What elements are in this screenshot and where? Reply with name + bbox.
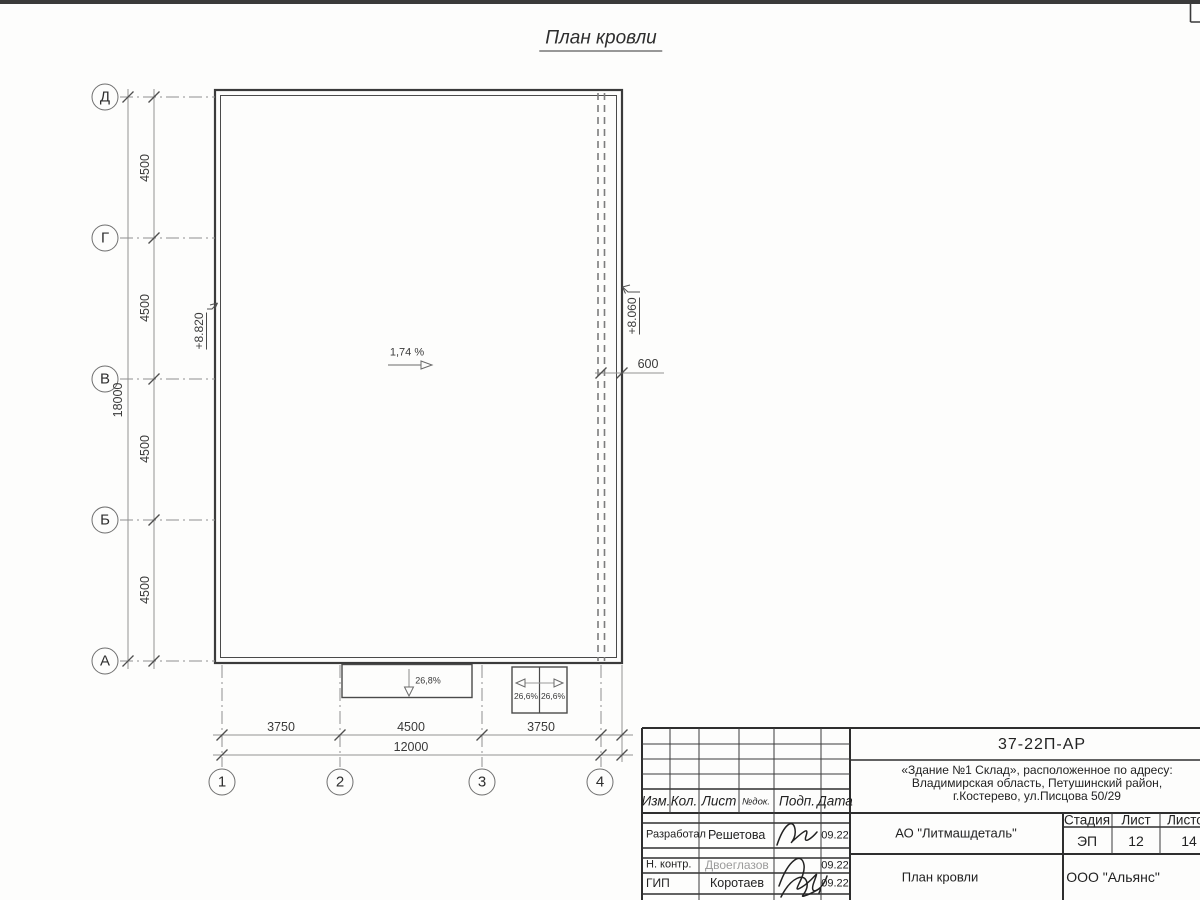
grid-lines: [120, 97, 601, 767]
col-header-kol: Кол.: [671, 794, 698, 808]
col-axis-bubble-2: 2: [327, 769, 354, 796]
sheet-label: Лист: [1121, 813, 1150, 827]
top-edge-bar: [0, 0, 1200, 4]
col-header-podp: Подп.: [779, 794, 815, 808]
parapet-dashed-lines: [598, 93, 605, 661]
sheet-title-heading: План кровли: [539, 29, 662, 52]
organization-name: ООО "Альянс": [1066, 870, 1160, 884]
dimension-ticks: [123, 92, 628, 761]
h-dim-3: 3750: [527, 721, 555, 734]
col-axis-bubble-3: 3: [469, 769, 496, 796]
stage-value: ЭП: [1077, 834, 1097, 848]
row-axis-bubble-d: Д: [92, 84, 119, 111]
v-dim-1: 4500: [139, 154, 152, 182]
col-header-izm: Изм.: [642, 794, 671, 808]
roof-slope-label: 1,74 %: [390, 348, 424, 359]
name-n-control: Двоеглазов: [705, 859, 769, 871]
row-axis-bubble-g: Г: [92, 225, 119, 252]
role-gip: ГИП: [646, 877, 670, 889]
address-line-2: Владимирская область, Петушинский район,: [912, 777, 1162, 789]
elevation-mark-left: +8.820: [193, 312, 207, 349]
col-axis-bubble-1: 1: [209, 769, 236, 796]
col-header-data: Дата: [817, 794, 853, 808]
drawing-sheet: { "drawing_title": "План кровли", "plan"…: [0, 0, 1200, 900]
role-n-control: Н. контр.: [646, 860, 691, 871]
v-dim-2: 4500: [139, 294, 152, 322]
canopy-center-slope: 26,8%: [415, 677, 441, 686]
row-axis-bubble-a: А: [92, 648, 119, 675]
elevation-leaders: [207, 285, 640, 310]
canopy-right-slope-right: 26,6%: [541, 692, 565, 701]
row-axis-bubble-b: Б: [92, 507, 119, 534]
customer-name: АО "Литмашдеталь": [895, 827, 1016, 840]
h-dim-total: 12000: [394, 741, 429, 754]
v-dim-3: 4500: [139, 435, 152, 463]
address-line-1: «Здание №1 Склад», расположенное по адре…: [901, 764, 1172, 776]
date-developer: 09.22: [821, 831, 849, 842]
v-dim-total: 18000: [112, 383, 125, 418]
col-header-list: Лист: [702, 794, 737, 808]
sheets-label: Листов: [1167, 813, 1200, 827]
building-outline: [215, 90, 622, 663]
signatures: [777, 824, 827, 897]
v-dim-4: 4500: [139, 576, 152, 604]
dimension-lines: [128, 89, 664, 762]
stage-label: Стадия: [1064, 813, 1110, 827]
col-axis-bubble-4: 4: [587, 769, 614, 796]
name-developer: Решетова: [708, 829, 765, 842]
canopy-right-slope-left: 26,6%: [514, 692, 538, 701]
sheets-value: 14: [1181, 834, 1197, 848]
elevation-mark-right: +8.060: [626, 297, 640, 334]
doc-number: 37-22П-АР: [998, 737, 1086, 753]
role-developer: Разработал: [646, 830, 706, 841]
sheet-name: План кровли: [902, 871, 979, 884]
address-line-3: г.Костерево, ул.Писцова 50/29: [953, 790, 1121, 802]
offset-dim-600: 600: [638, 358, 659, 371]
col-header-ndok: №док.: [742, 797, 770, 807]
name-gip: Коротаев: [710, 877, 764, 890]
slope-arrow: [388, 361, 432, 369]
date-n-control: 09.22: [821, 861, 849, 872]
sheet-corner-mark: [1191, 2, 1200, 22]
h-dim-1: 3750: [267, 721, 295, 734]
sheet-value: 12: [1128, 834, 1144, 848]
date-gip: 09.22: [821, 879, 849, 890]
canopy-center: [342, 665, 472, 698]
h-dim-2: 4500: [397, 721, 425, 734]
